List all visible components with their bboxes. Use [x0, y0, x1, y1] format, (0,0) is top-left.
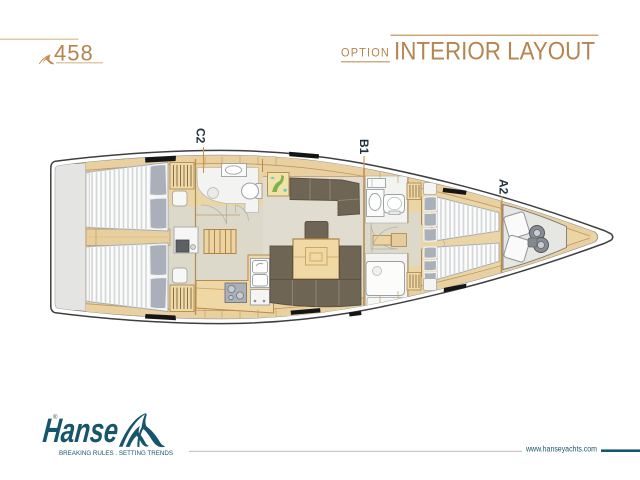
svg-text:www.hanseyachts.com: www.hanseyachts.com [525, 445, 597, 454]
svg-text:BREAKING RULES . SETTING TREND: BREAKING RULES . SETTING TRENDS [59, 450, 173, 457]
svg-text:C2: C2 [194, 128, 208, 144]
svg-text:®: ® [53, 414, 58, 421]
svg-text:A2: A2 [497, 179, 511, 195]
svg-text:INTERIOR LAYOUT: INTERIOR LAYOUT [394, 38, 595, 66]
svg-text:OPTION: OPTION [341, 48, 390, 60]
svg-text:B1: B1 [357, 139, 371, 155]
svg-text:458: 458 [54, 41, 94, 66]
